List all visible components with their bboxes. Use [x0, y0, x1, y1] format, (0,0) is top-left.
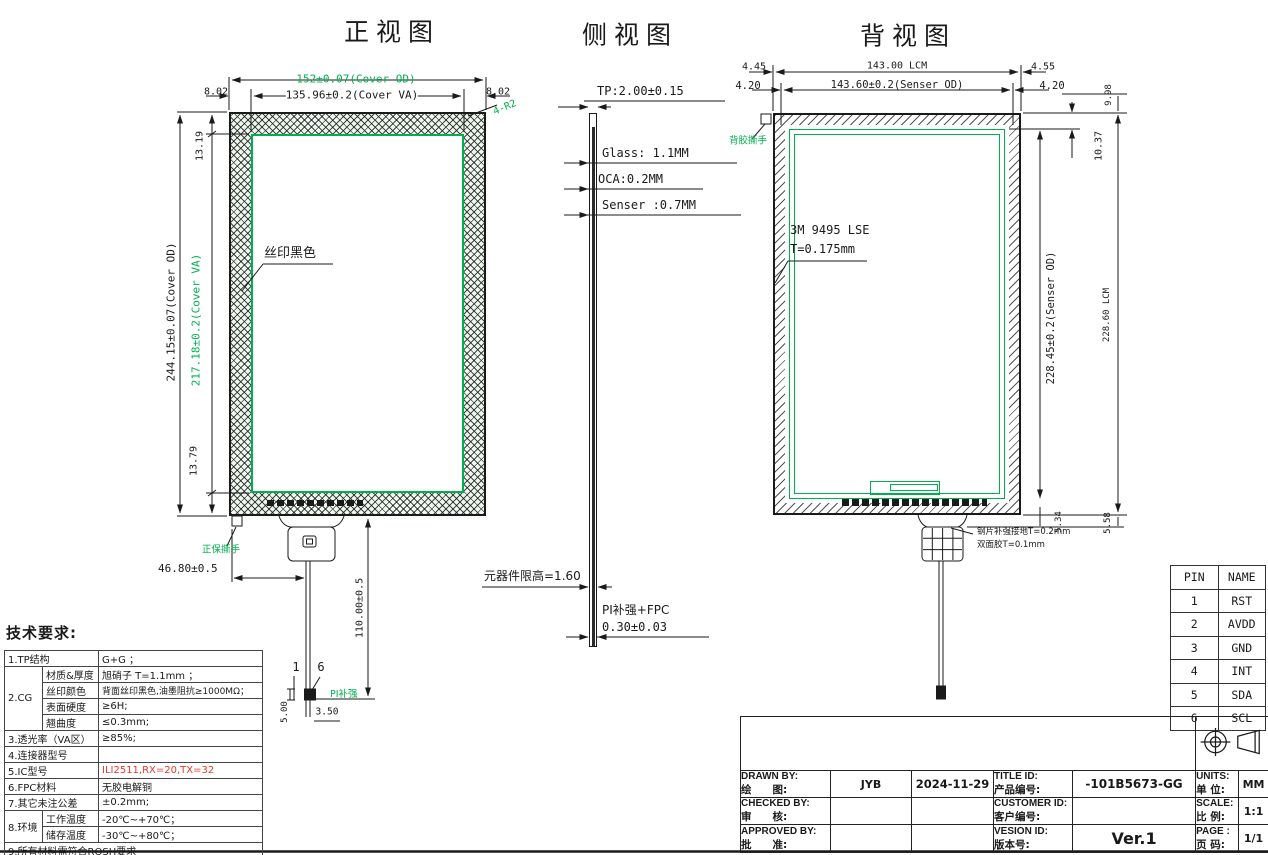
back-adhesive-label2: T=0.175mm: [790, 243, 855, 257]
front-dim-height-od: 244.15±0.07(Cover OD): [165, 242, 178, 381]
back-dim-420-right: 4.20: [1039, 80, 1064, 92]
units-cell: UNITS:单 位:: [1196, 771, 1239, 798]
pin-row: 3GND: [1171, 636, 1266, 660]
scale-cell: SCALE:比 例:: [1196, 798, 1239, 825]
name-header: NAME: [1218, 566, 1266, 590]
front-dim-cover-va: 135.96±0.2(Cover VA): [286, 90, 418, 103]
tech-group-env: 8.环境: [5, 811, 43, 843]
front-dim-tail-length: 110.00±0.5: [355, 578, 366, 638]
version-cell: VESION ID:版本号:: [994, 825, 1073, 853]
back-dim-lcm-height: 228.60 LCM: [1102, 288, 1112, 342]
front-pin-end: 6: [317, 661, 324, 675]
front-dim-margin-right: 8.02: [486, 86, 510, 98]
front-dim-cover-od: 152±0.07(Cover OD): [296, 74, 415, 87]
title-block: DRAWN BY:绘 图: JYB 2024-11-29 TITLE ID:产品…: [740, 716, 1268, 853]
side-pi-fpc-label1: PI补强+FPC: [602, 604, 669, 618]
side-oca-label: OCA:0.2MM: [598, 173, 663, 187]
front-silkscreen-label: 丝印黑色: [264, 247, 316, 262]
pin-row: 1RST: [1171, 589, 1266, 613]
approved-by-cell: APPROVED BY:批 准:: [741, 825, 831, 853]
front-dim-bottom-margin: 13.79: [189, 446, 200, 476]
front-dim-pad-height: 5.00: [280, 701, 290, 723]
customer-id-value: [1073, 798, 1196, 825]
back-adhesive-label1: 3M 9495 LSE: [790, 224, 869, 238]
units-value: MM: [1239, 771, 1268, 798]
drawn-date: 2024-11-29: [912, 771, 994, 798]
checked-date: [912, 798, 994, 825]
side-tp-label: TP:2.00±0.15: [597, 85, 684, 99]
side-view-title: 侧视图: [582, 22, 678, 51]
tech-table: 1.TP结构G+G ； 2.CG材质&厚度旭硝子 T=1.1mm ； 丝印颜色背…: [4, 650, 263, 855]
front-tear-tab-label: 正保撕手: [202, 546, 240, 557]
title-id-cell: TITLE ID:产品编号:: [994, 771, 1073, 798]
customer-id-cell: CUSTOMER ID:客户编号:: [994, 798, 1073, 825]
approved-by-value: [831, 825, 912, 853]
checked-by-value: [831, 798, 912, 825]
tech-requirements: 技术要求: 1.TP结构G+G ； 2.CG材质&厚度旭硝子 T=1.1mm ；…: [4, 622, 263, 855]
checked-by-cell: CHECKED BY:审 核:: [741, 798, 831, 825]
pin-row: 2AVDD: [1171, 613, 1266, 637]
side-glass-label: Glass: 1.1MM: [602, 147, 689, 161]
drawn-by-value: JYB: [831, 771, 912, 798]
back-tear-tab-label: 背胶撕手: [729, 137, 767, 148]
back-view-title: 背视图: [860, 23, 956, 52]
back-dim-445: 4.45: [742, 61, 766, 73]
pin-row: 5SDA: [1171, 683, 1266, 707]
back-dim-1037: 10.37: [1094, 131, 1105, 161]
drawing-sheet: 正视图 152±0.07(Cover OD) 135.96±0.2(Cover …: [0, 0, 1268, 855]
back-steel-label1: 钢片补强接地T=0.2mm: [977, 528, 1070, 538]
front-view-title: 正视图: [344, 19, 440, 48]
back-dim-558: 5.58: [1103, 512, 1113, 534]
back-dim-sensor-width: 143.60±0.2(Senser OD): [831, 79, 964, 91]
front-dim-margin-left: 8.02: [204, 86, 228, 98]
front-dim-pad-width: 3.50: [316, 708, 339, 719]
back-dim-lcm-width: 143.00 LCM: [867, 60, 927, 72]
page-value: 1/1: [1239, 825, 1268, 853]
third-angle-projection-icon: [1199, 723, 1265, 761]
side-component-limit-label: 元器件限高=1.60: [484, 570, 581, 584]
front-dim-tail-offset: 46.80±0.5: [158, 563, 218, 576]
scale-value: 1:1: [1239, 798, 1268, 825]
front-dim-top-margin: 13.19: [195, 131, 206, 161]
pin-header: PIN: [1171, 566, 1219, 590]
front-pin-start: 1: [292, 661, 299, 675]
front-pi-stiffener-label: PI补强: [330, 690, 358, 701]
version-value: Ver.1: [1073, 825, 1196, 853]
back-dim-455: 4.55: [1031, 61, 1055, 73]
back-dim-420-left: 4.20: [735, 80, 760, 92]
tech-heading: 技术要求:: [6, 622, 263, 643]
back-steel-label2: 双面胶T=0.1mm: [977, 541, 1045, 551]
tech-ic-value: ILI2511,RX=20,TX=32: [99, 763, 263, 779]
title-block-blank: [741, 717, 1196, 771]
projection-symbol: [1196, 717, 1268, 771]
front-dim-height-va: 217.18±0.2(Cover VA): [190, 254, 203, 386]
back-dim-998: 9.98: [1104, 84, 1114, 106]
pin-row: 4INT: [1171, 660, 1266, 684]
side-sensor-label: Senser :0.7MM: [602, 199, 696, 213]
title-id-value: -101B5673-GG: [1073, 771, 1196, 798]
approved-date: [912, 825, 994, 853]
drawn-by-cell: DRAWN BY:绘 图:: [741, 771, 831, 798]
back-dimensions: [749, 65, 1127, 699]
side-pi-fpc-label2: 0.30±0.03: [602, 621, 667, 635]
tech-group-cg: 2.CG: [5, 667, 43, 731]
pin-table: PINNAME 1RST 2AVDD 3GND 4INT 5SDA 6SCL: [1170, 565, 1266, 731]
back-dim-sensor-height: 228.45±0.2(Senser OD): [1045, 252, 1057, 385]
page-cell: PAGE :页 码:: [1196, 825, 1239, 853]
tech-label: 1.TP结构: [5, 651, 99, 667]
